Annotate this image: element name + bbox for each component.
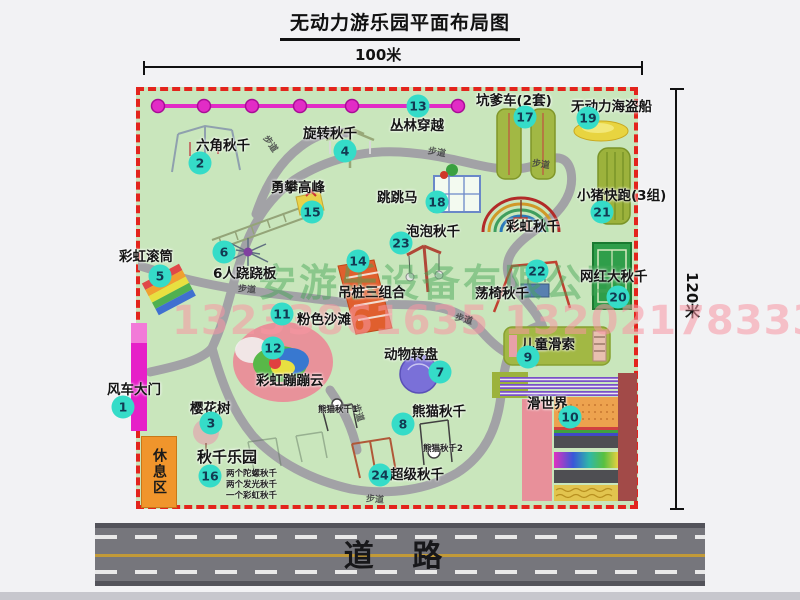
page-title: 无动力游乐园平面布局图 bbox=[0, 8, 800, 41]
rest-area-label: 休息区 bbox=[149, 448, 169, 496]
attraction-14-badge: 14 bbox=[347, 250, 370, 273]
panda-swing-2-label: 熊猫秋千2 bbox=[423, 442, 463, 454]
attraction-1-label: 风车大门 bbox=[107, 378, 161, 398]
attraction-6-label: 6人跷跷板 bbox=[213, 262, 276, 282]
attraction-18-badge: 18 bbox=[426, 191, 449, 214]
attraction-7-badge: 7 bbox=[429, 361, 452, 384]
rainbow-swing-label: 彩虹秋千 bbox=[506, 215, 560, 235]
attraction-20-label: 网红大秋千 bbox=[580, 265, 648, 285]
attraction-5-badge: 5 bbox=[149, 265, 172, 288]
walkway-label: 步道 bbox=[531, 156, 551, 171]
attraction-16-badge: 16 bbox=[199, 465, 222, 488]
road: 道 路 bbox=[95, 523, 705, 586]
attraction-6-badge: 6 bbox=[213, 241, 236, 264]
attraction-17-label: 坑爹车(2套) bbox=[476, 89, 552, 109]
attraction-21-label: 小猪快跑(3组) bbox=[577, 184, 666, 204]
attraction-16-label: 秋千乐园 bbox=[197, 446, 257, 467]
walkway-label: 步道 bbox=[365, 491, 384, 506]
attraction-3-badge: 3 bbox=[200, 412, 223, 435]
attraction-13-badge: 13 bbox=[407, 95, 430, 118]
swing-park-detail-3: 一个彩虹秋千 bbox=[226, 489, 277, 501]
attraction-14-label: 吊桩三组合 bbox=[338, 281, 406, 301]
attraction-9-badge: 9 bbox=[517, 346, 540, 369]
walkway-label: 步道 bbox=[237, 281, 256, 296]
attraction-2-label: 六角秋千 bbox=[196, 134, 250, 154]
attraction-4-badge: 4 bbox=[334, 140, 357, 163]
attraction-1-badge: 1 bbox=[112, 396, 135, 419]
width-dimension-line bbox=[143, 66, 643, 68]
attraction-23-badge: 23 bbox=[390, 232, 413, 255]
park-layout-map: 无动力游乐园平面布局图 100米 120米 bbox=[0, 0, 800, 600]
attraction-20-badge: 20 bbox=[607, 286, 630, 309]
attraction-15-badge: 15 bbox=[301, 201, 324, 224]
road-label: 道 路 bbox=[95, 531, 705, 575]
attraction-18-label: 跳跳马 bbox=[377, 186, 418, 206]
attraction-7-label: 动物转盘 bbox=[384, 343, 438, 363]
attraction-10-badge: 10 bbox=[559, 406, 582, 429]
attraction-24-badge: 24 bbox=[369, 464, 392, 487]
attraction-19-badge: 19 bbox=[577, 107, 600, 130]
attraction-5-label: 彩虹滚筒 bbox=[119, 245, 173, 265]
attraction-17-badge: 17 bbox=[514, 106, 537, 129]
attraction-22-badge: 22 bbox=[526, 260, 549, 283]
attraction-12-badge: 12 bbox=[262, 337, 285, 360]
attraction-4-label: 旋转秋千 bbox=[303, 122, 357, 142]
attraction-8-label: 熊猫秋千 bbox=[412, 400, 466, 420]
attraction-22-label: 荡椅秋千 bbox=[475, 282, 529, 302]
bottom-edge-bar bbox=[0, 592, 800, 600]
rest-area-box: 休息区 bbox=[141, 436, 177, 508]
attraction-15-label: 勇攀高峰 bbox=[271, 176, 325, 196]
attraction-11-label: 粉色沙滩 bbox=[297, 308, 351, 328]
attraction-23-label: 泡泡秋千 bbox=[406, 220, 460, 240]
attraction-24-label: 超级秋千 bbox=[390, 463, 444, 483]
attraction-21-badge: 21 bbox=[591, 201, 614, 224]
width-dimension-label: 100米 bbox=[355, 44, 401, 65]
attraction-2-badge: 2 bbox=[189, 152, 212, 175]
attraction-12-label: 彩虹蹦蹦云 bbox=[256, 369, 324, 389]
attraction-8-badge: 8 bbox=[392, 413, 415, 436]
attraction-11-badge: 11 bbox=[271, 303, 294, 326]
